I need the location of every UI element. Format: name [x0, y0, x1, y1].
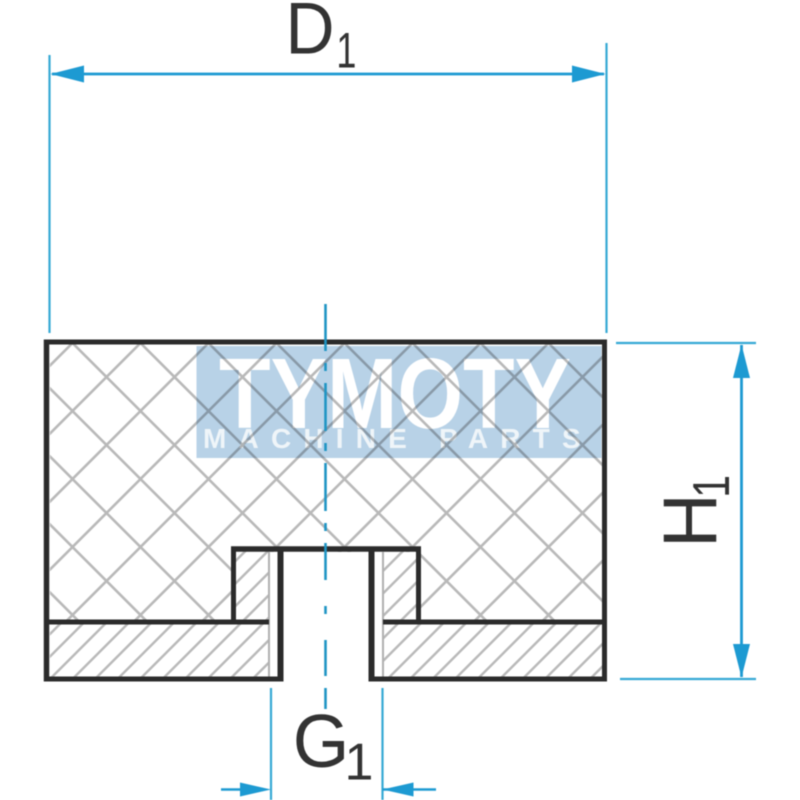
svg-text:H: H: [649, 493, 734, 548]
svg-text:G: G: [293, 699, 350, 783]
svg-text:1: 1: [682, 475, 740, 498]
svg-text:1: 1: [345, 734, 374, 792]
svg-text:D: D: [286, 0, 335, 69]
svg-text:1: 1: [336, 24, 356, 79]
